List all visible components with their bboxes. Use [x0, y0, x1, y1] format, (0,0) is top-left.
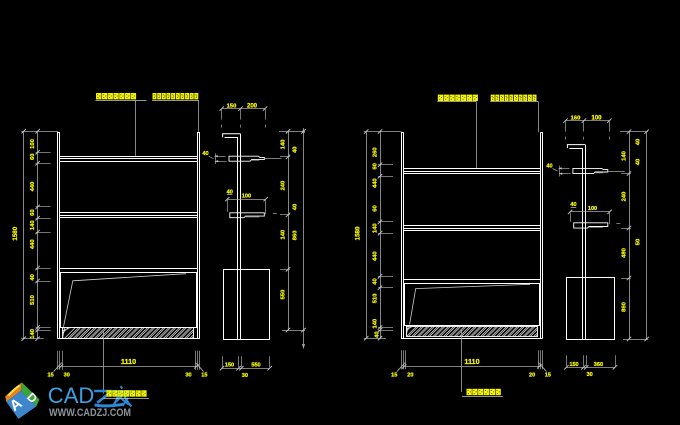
svg-text:140: 140 [622, 151, 628, 161]
svg-text:260: 260 [372, 147, 378, 157]
svg-text:15: 15 [545, 373, 551, 379]
svg-text:40: 40 [372, 278, 378, 284]
svg-text:200: 200 [247, 103, 258, 109]
svg-text:140: 140 [372, 223, 378, 233]
svg-text:860: 860 [622, 302, 628, 312]
svg-text:30: 30 [64, 373, 70, 379]
svg-text:100: 100 [242, 194, 251, 200]
svg-text:150: 150 [227, 103, 237, 109]
svg-text:360: 360 [594, 362, 603, 368]
svg-text:100: 100 [588, 206, 597, 212]
svg-text:30: 30 [586, 372, 592, 378]
svg-text:30: 30 [242, 373, 248, 379]
svg-text:1580: 1580 [12, 226, 19, 240]
svg-text:40: 40 [546, 164, 552, 170]
svg-text:550: 550 [251, 363, 260, 369]
svg-text:15: 15 [391, 373, 397, 379]
svg-text:550: 550 [281, 290, 287, 300]
svg-text:CAD: CAD [48, 383, 95, 408]
svg-text:1580: 1580 [355, 226, 362, 240]
svg-text:40: 40 [30, 274, 36, 280]
svg-text:440: 440 [30, 182, 36, 192]
svg-text:40: 40 [202, 151, 208, 157]
svg-text:15: 15 [201, 373, 207, 379]
svg-text:40: 40 [570, 202, 576, 208]
svg-text:140: 140 [281, 230, 287, 240]
svg-text:40: 40 [636, 159, 642, 165]
svg-text:440: 440 [30, 239, 36, 249]
svg-text:60: 60 [372, 205, 378, 211]
svg-text:510: 510 [372, 294, 378, 304]
svg-text:60: 60 [372, 163, 378, 169]
svg-text:140: 140 [372, 319, 378, 329]
svg-text:50: 50 [636, 239, 642, 245]
svg-text:30: 30 [185, 373, 191, 379]
svg-text:480: 480 [622, 248, 628, 258]
svg-text:60: 60 [30, 209, 36, 215]
svg-text:1110: 1110 [464, 357, 479, 366]
svg-text:860: 860 [293, 231, 299, 241]
svg-text:240: 240 [622, 192, 628, 202]
svg-text:240: 240 [281, 181, 287, 191]
svg-text:440: 440 [372, 251, 378, 261]
svg-text:150: 150 [569, 362, 578, 368]
svg-text:40: 40 [293, 204, 299, 210]
svg-text:510: 510 [30, 295, 36, 305]
svg-text:160: 160 [30, 139, 36, 149]
svg-text:100: 100 [591, 115, 602, 121]
svg-text:40: 40 [293, 146, 299, 152]
svg-text:20: 20 [529, 373, 535, 379]
svg-text:1110: 1110 [121, 357, 136, 366]
svg-text:140: 140 [30, 220, 36, 230]
svg-text:440: 440 [372, 178, 378, 188]
svg-text:15: 15 [47, 373, 53, 379]
svg-text:WWW.CADZJ.COM: WWW.CADZJ.COM [49, 407, 131, 419]
svg-text:140: 140 [30, 329, 36, 339]
svg-text:60: 60 [30, 154, 36, 160]
svg-text:160: 160 [571, 115, 581, 121]
svg-text:20: 20 [407, 373, 413, 379]
svg-text:40: 40 [374, 331, 380, 337]
svg-text:140: 140 [281, 140, 287, 150]
svg-text:40: 40 [636, 139, 642, 145]
svg-text:150: 150 [225, 363, 234, 369]
